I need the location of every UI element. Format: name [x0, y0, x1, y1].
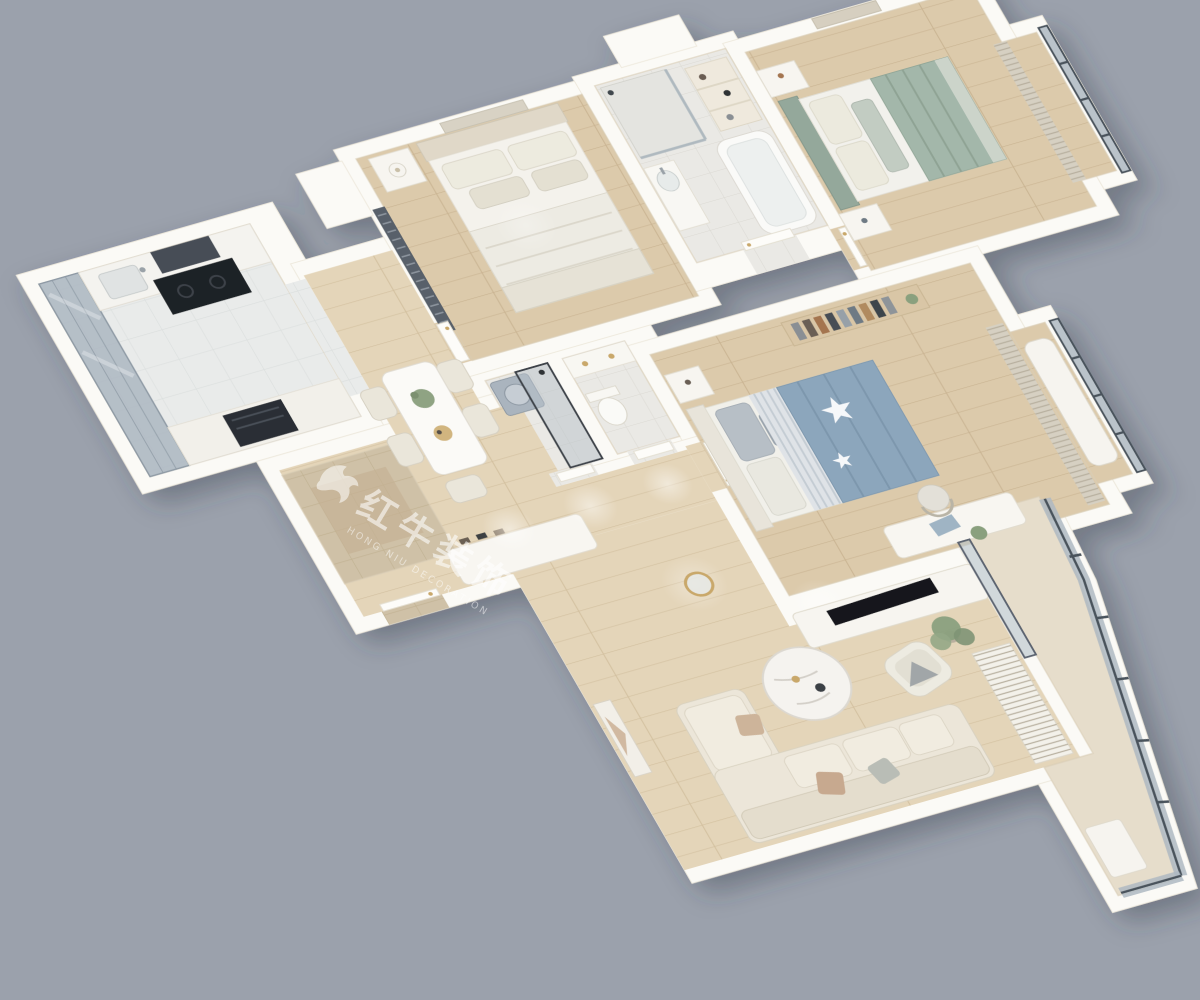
scene-canvas: 红牛装饰 HONG NIU DECORATION [0, 0, 1200, 1000]
sofa-pillow-2 [815, 772, 845, 795]
floorplan-render: 红牛装饰 HONG NIU DECORATION [0, 0, 1200, 1000]
